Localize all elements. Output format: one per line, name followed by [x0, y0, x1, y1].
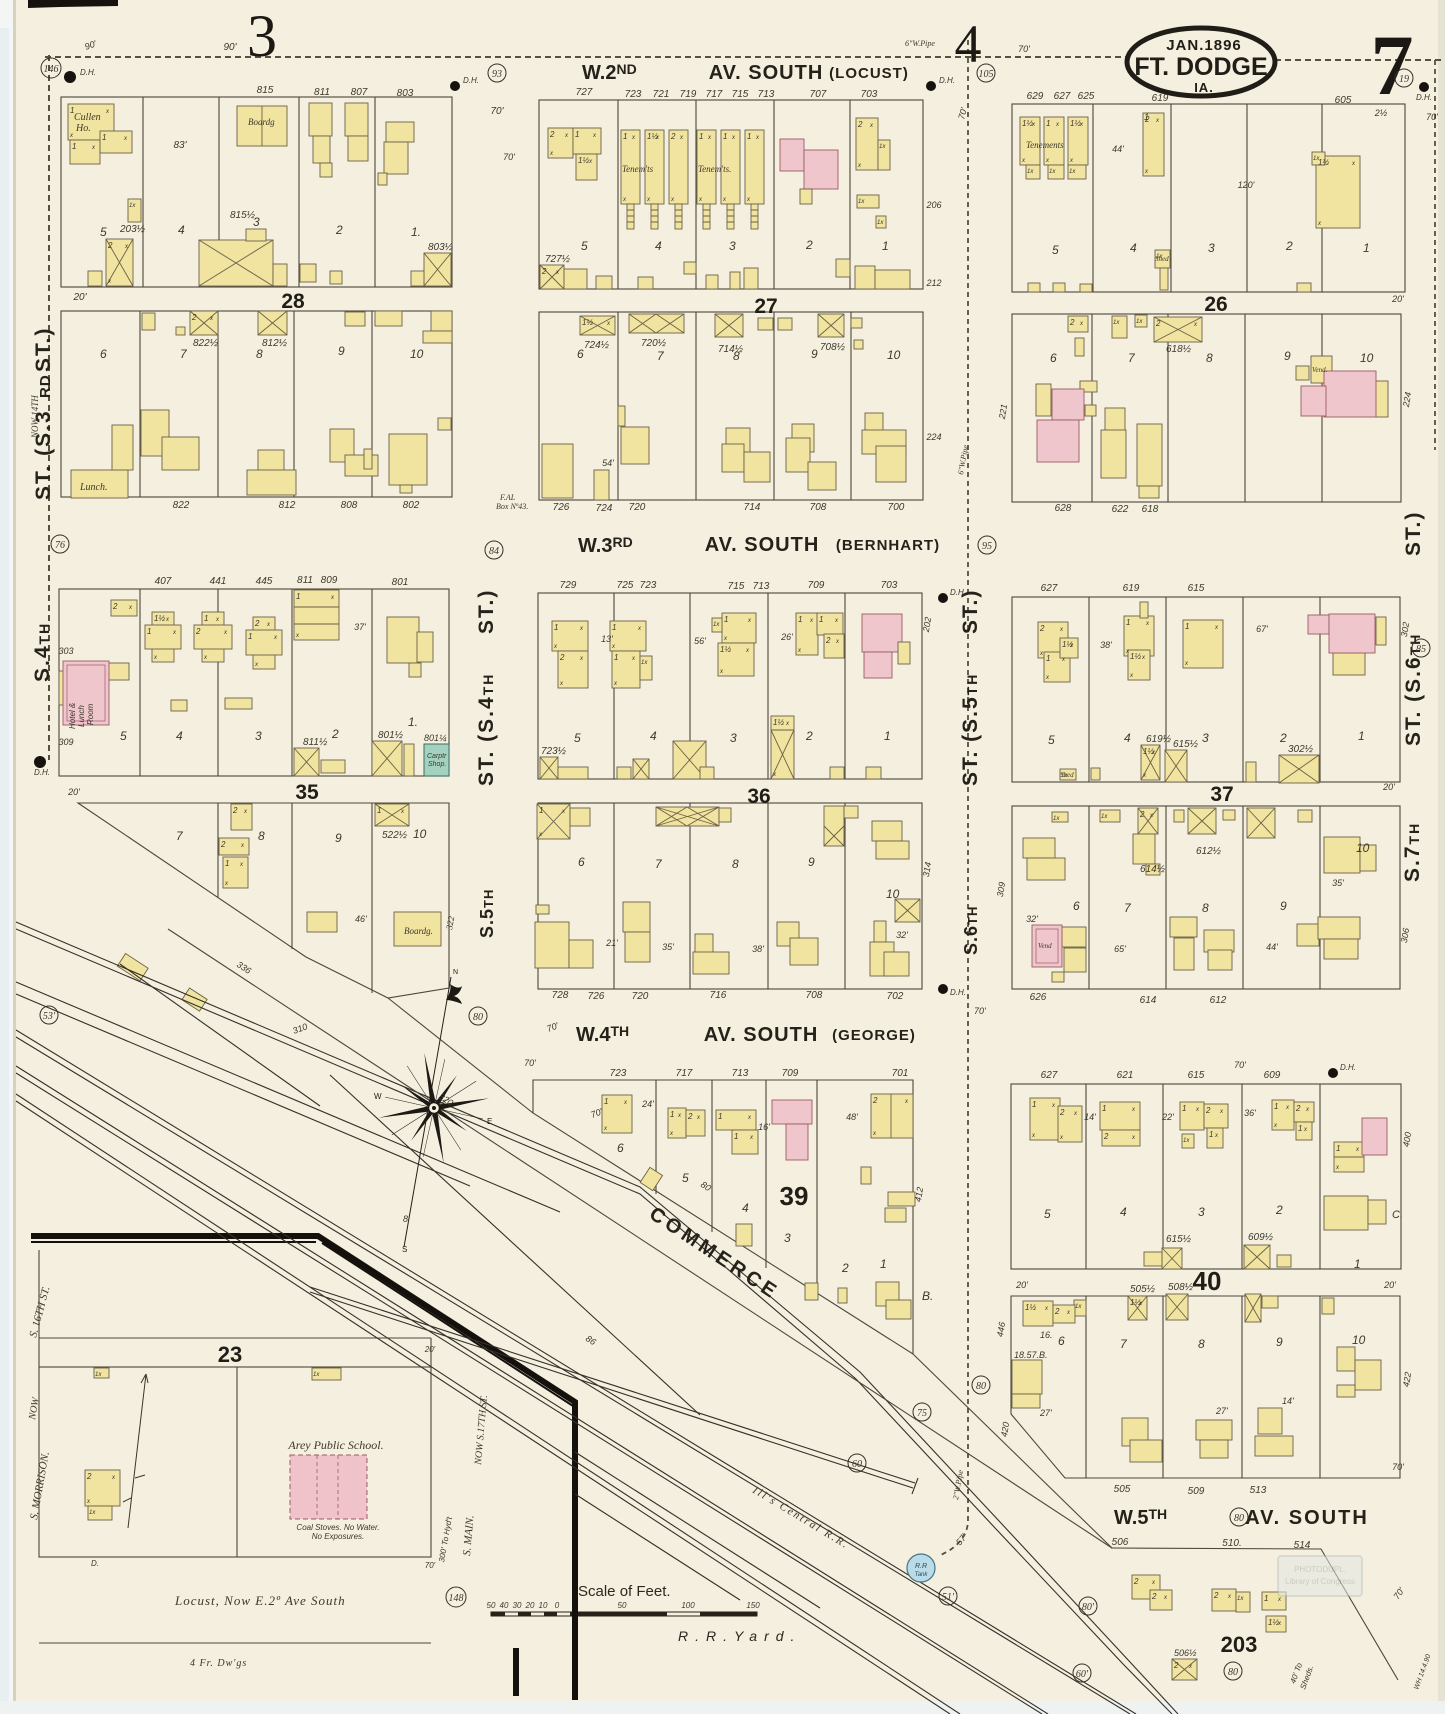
svg-text:2: 2 [1279, 731, 1287, 745]
svg-text:70': 70' [524, 1058, 536, 1068]
svg-text:2: 2 [670, 132, 676, 141]
svg-text:32': 32' [1026, 914, 1038, 924]
svg-text:3: 3 [730, 731, 737, 745]
svg-text:48': 48' [846, 1112, 858, 1122]
svg-text:1: 1 [225, 859, 229, 868]
svg-text:27': 27' [1039, 1408, 1052, 1418]
svg-text:44': 44' [1112, 144, 1124, 154]
svg-text:RD: RD [37, 374, 54, 398]
svg-text:39: 39 [780, 1181, 809, 1211]
svg-text:801: 801 [392, 577, 409, 588]
svg-text:2: 2 [1275, 1203, 1283, 1217]
svg-text:84: 84 [489, 546, 499, 557]
svg-text:10: 10 [410, 347, 424, 361]
svg-text:14': 14' [1084, 1112, 1096, 1122]
svg-text:622: 622 [1112, 504, 1129, 515]
svg-text:212: 212 [925, 278, 941, 288]
svg-text:76: 76 [55, 540, 65, 551]
svg-text:1: 1 [575, 130, 579, 139]
svg-text:FT. DODGE: FT. DODGE [1134, 53, 1267, 81]
svg-text:4: 4 [650, 729, 657, 743]
svg-text:729: 729 [560, 580, 577, 591]
svg-text:1x: 1x [1156, 254, 1163, 260]
svg-text:Vend.: Vend. [1312, 366, 1328, 374]
svg-text:26': 26' [780, 632, 793, 642]
svg-text:614: 614 [1140, 995, 1157, 1006]
svg-text:723: 723 [640, 580, 657, 591]
svg-text:2: 2 [1173, 1661, 1179, 1670]
svg-text:2: 2 [549, 130, 555, 139]
svg-text:65': 65' [1114, 944, 1126, 954]
svg-text:709: 709 [782, 1068, 799, 1079]
svg-text:105: 105 [979, 69, 994, 80]
svg-text:9: 9 [1280, 899, 1287, 913]
svg-text:629: 629 [1027, 91, 1044, 102]
svg-text:120': 120' [1238, 180, 1255, 190]
svg-text:N: N [453, 969, 458, 976]
svg-text:F.AL: F.AL [499, 493, 516, 502]
svg-text:714: 714 [744, 502, 761, 513]
svg-text:70': 70' [425, 1561, 436, 1570]
svg-text:8: 8 [732, 857, 739, 871]
svg-text:4: 4 [176, 729, 183, 743]
svg-text:4: 4 [955, 14, 982, 74]
svg-text:3: 3 [1202, 731, 1209, 745]
svg-text:716: 716 [710, 990, 727, 1001]
svg-text:1x: 1x [641, 660, 648, 666]
svg-text:1: 1 [1126, 618, 1130, 627]
svg-text:32': 32' [896, 930, 908, 940]
svg-text:612½: 612½ [1196, 846, 1222, 857]
svg-text:5: 5 [682, 1171, 689, 1185]
svg-text:1: 1 [1264, 1594, 1268, 1603]
svg-text:36': 36' [1244, 1108, 1256, 1118]
svg-text:80: 80 [473, 1012, 483, 1023]
svg-text:724½: 724½ [584, 340, 610, 351]
svg-text:1: 1 [734, 1132, 738, 1141]
svg-text:19: 19 [1399, 74, 1409, 85]
svg-text:707: 707 [810, 89, 827, 100]
svg-text:Ho.: Ho. [75, 123, 91, 134]
svg-text:38': 38' [1100, 640, 1112, 650]
svg-text:815: 815 [257, 85, 274, 96]
svg-text:619: 619 [1123, 583, 1140, 594]
svg-text:724: 724 [596, 503, 613, 514]
svg-text:80: 80 [1234, 1513, 1244, 1524]
svg-text:W: W [374, 1092, 382, 1101]
svg-text:2: 2 [107, 241, 113, 250]
svg-text:1: 1 [604, 1097, 608, 1106]
svg-text:50: 50 [618, 1601, 627, 1610]
svg-text:509: 509 [1188, 1486, 1205, 1497]
svg-text:1: 1 [72, 142, 76, 151]
svg-text:717: 717 [676, 1068, 693, 1079]
svg-text:1½: 1½ [1318, 158, 1329, 167]
svg-text:56': 56' [694, 636, 706, 646]
svg-text:4: 4 [742, 1201, 749, 1215]
svg-text:2: 2 [1133, 1577, 1139, 1586]
svg-text:1: 1 [102, 133, 106, 142]
svg-text:1½: 1½ [1130, 652, 1141, 661]
svg-text:309: 309 [58, 737, 73, 747]
svg-text:807: 807 [351, 87, 368, 98]
svg-text:802: 802 [403, 500, 420, 511]
svg-text:150: 150 [746, 1601, 760, 1610]
svg-text:2: 2 [1139, 810, 1145, 819]
svg-text:Tenem'ts: Tenem'ts [622, 164, 654, 174]
svg-text:Cullen: Cullen [74, 112, 101, 123]
svg-text:30: 30 [513, 1601, 522, 1610]
svg-text:1: 1 [884, 729, 891, 743]
svg-text:619: 619 [1152, 93, 1169, 104]
svg-text:522½: 522½ [382, 830, 408, 841]
svg-text:2: 2 [1213, 1591, 1219, 1600]
svg-text:85: 85 [1416, 644, 1426, 655]
svg-text:6: 6 [578, 855, 585, 869]
svg-text:2: 2 [254, 619, 260, 628]
svg-text:1: 1 [1185, 622, 1189, 631]
svg-text:2: 2 [112, 602, 118, 611]
svg-text:605: 605 [1335, 95, 1352, 106]
svg-text:Box Nº43.: Box Nº43. [496, 502, 528, 511]
svg-text:Lunch: Lunch [77, 705, 86, 727]
svg-text:715: 715 [728, 581, 745, 592]
svg-text:2: 2 [541, 267, 547, 276]
svg-text:D.H.: D.H. [34, 768, 50, 777]
svg-text:4: 4 [655, 239, 662, 253]
svg-text:808: 808 [341, 500, 358, 511]
svg-text:4 Fr. Dw'gs: 4 Fr. Dw'gs [190, 1658, 247, 1669]
svg-text:625: 625 [1078, 91, 1095, 102]
svg-text:303: 303 [58, 646, 73, 656]
svg-text:44': 44' [1266, 942, 1278, 952]
svg-text:1: 1 [614, 653, 618, 662]
svg-text:D.H.: D.H. [939, 76, 955, 85]
svg-text:1x: 1x [1075, 1304, 1082, 1310]
svg-text:809: 809 [321, 575, 338, 586]
svg-text:621: 621 [1117, 1070, 1134, 1081]
svg-text:713: 713 [758, 89, 775, 100]
svg-text:JAN.1896: JAN.1896 [1166, 37, 1242, 54]
svg-text:Boardg.: Boardg. [404, 926, 433, 936]
svg-text:626: 626 [1030, 992, 1047, 1003]
svg-text:3: 3 [784, 1231, 791, 1245]
svg-text:1x: 1x [879, 144, 886, 150]
svg-text:26: 26 [1204, 293, 1227, 316]
svg-text:37': 37' [354, 622, 366, 632]
svg-text:4: 4 [1124, 731, 1131, 745]
svg-text:9: 9 [811, 347, 818, 361]
svg-text:Scale of Feet.: Scale of Feet. [578, 1583, 671, 1600]
svg-text:1: 1 [1032, 1100, 1036, 1109]
svg-text:Shop.: Shop. [428, 761, 446, 768]
svg-text:8: 8 [256, 347, 263, 361]
svg-text:AV. SOUTH: AV. SOUTH [709, 62, 824, 84]
svg-text:50: 50 [487, 1601, 496, 1610]
svg-text:803½: 803½ [428, 242, 454, 253]
svg-text:713: 713 [753, 581, 770, 592]
svg-text:2: 2 [559, 653, 565, 662]
svg-text:721: 721 [653, 89, 670, 100]
svg-text:513: 513 [1250, 1485, 1267, 1496]
svg-text:9: 9 [1284, 349, 1291, 363]
svg-text:1½: 1½ [1025, 1303, 1036, 1312]
svg-text:23: 23 [218, 1342, 242, 1367]
svg-text:506½: 506½ [1174, 1648, 1197, 1658]
svg-text:505: 505 [1114, 1484, 1131, 1495]
svg-text:D.H.: D.H. [80, 68, 96, 77]
svg-text:1: 1 [718, 1112, 722, 1121]
svg-text:224: 224 [925, 432, 941, 442]
svg-text:Tenem'ts.: Tenem'ts. [698, 164, 731, 174]
svg-text:441: 441 [210, 576, 227, 587]
svg-text:Tank: Tank [915, 1572, 929, 1578]
svg-text:20': 20' [1015, 1280, 1028, 1290]
svg-text:5: 5 [1044, 1207, 1051, 1221]
svg-text:ST.): ST.) [475, 589, 498, 634]
svg-text:Lunch.: Lunch. [79, 482, 108, 493]
svg-text:407: 407 [155, 576, 172, 587]
svg-text:22': 22' [1161, 1112, 1174, 1122]
svg-text:70': 70' [974, 1006, 986, 1016]
svg-text:1: 1 [1046, 654, 1050, 663]
svg-text:1x: 1x [1101, 814, 1108, 820]
svg-text:1: 1 [882, 239, 889, 253]
svg-text:2: 2 [1059, 1108, 1065, 1117]
svg-text:1: 1 [248, 632, 252, 641]
svg-text:2: 2 [1155, 319, 1161, 328]
svg-text:2: 2 [872, 1096, 878, 1105]
svg-text:E: E [487, 1117, 492, 1126]
svg-text:16': 16' [758, 1122, 770, 1132]
svg-text:37: 37 [1210, 783, 1233, 806]
svg-text:1x: 1x [129, 203, 136, 209]
svg-text:1x: 1x [95, 1372, 102, 1378]
svg-text:24': 24' [641, 1099, 654, 1109]
svg-text:1: 1 [723, 132, 727, 141]
svg-text:95: 95 [982, 541, 992, 552]
svg-text:1½: 1½ [720, 645, 731, 654]
svg-text:2: 2 [220, 840, 226, 849]
svg-text:8: 8 [1202, 901, 1209, 915]
svg-text:727½: 727½ [545, 254, 571, 265]
svg-text:7: 7 [1371, 17, 1414, 113]
svg-text:54': 54' [602, 458, 614, 468]
svg-text:8: 8 [1198, 1337, 1205, 1351]
svg-text:3: 3 [255, 729, 262, 743]
svg-text:S: S [402, 1245, 407, 1254]
svg-text:16.: 16. [1040, 1330, 1053, 1340]
svg-text:2: 2 [825, 636, 831, 645]
svg-text:20': 20' [1391, 294, 1404, 304]
svg-text:2: 2 [1151, 1592, 1157, 1601]
svg-text:1x: 1x [713, 622, 720, 628]
svg-text:1x: 1x [1113, 320, 1120, 326]
svg-text:3: 3 [247, 3, 277, 69]
svg-text:D.H.: D.H. [950, 588, 966, 597]
svg-text:1x: 1x [1313, 156, 1320, 162]
svg-text:720: 720 [632, 991, 649, 1002]
svg-text:13': 13' [601, 634, 613, 644]
svg-text:2: 2 [331, 727, 339, 741]
svg-text:83': 83' [173, 140, 187, 151]
svg-text:726: 726 [588, 991, 605, 1002]
svg-text:2: 2 [1144, 115, 1150, 124]
svg-text:1.: 1. [408, 715, 418, 729]
svg-text:723: 723 [610, 1068, 627, 1079]
svg-text:2: 2 [687, 1112, 693, 1121]
svg-text:6: 6 [1058, 1334, 1065, 1348]
svg-text:2: 2 [1205, 1106, 1211, 1115]
svg-text:1x: 1x [1183, 1138, 1190, 1144]
svg-text:4: 4 [178, 223, 185, 237]
svg-text:14': 14' [1282, 1396, 1294, 1406]
svg-text:NOW 14TH: NOW 14TH [30, 395, 40, 439]
svg-text:Locust, Now E.2º Ave South: Locust, Now E.2º Ave South [174, 1593, 346, 1608]
svg-text:728: 728 [552, 990, 569, 1001]
svg-text:6: 6 [100, 347, 107, 361]
svg-text:1x: 1x [89, 1510, 96, 1516]
svg-text:2: 2 [1103, 1132, 1109, 1141]
svg-text:1x: 1x [1053, 816, 1060, 822]
svg-text:10: 10 [886, 887, 900, 901]
svg-text:811: 811 [297, 575, 313, 586]
svg-text:609½: 609½ [1248, 1232, 1274, 1243]
svg-text:35: 35 [295, 781, 319, 804]
svg-text:2: 2 [191, 313, 197, 322]
svg-text:10: 10 [413, 827, 427, 841]
svg-text:Hotel &: Hotel & [68, 703, 77, 729]
svg-text:203: 203 [1221, 1632, 1258, 1657]
svg-text:AV. SOUTH: AV. SOUTH [704, 1024, 819, 1046]
svg-text:D.H.: D.H. [1340, 1063, 1356, 1072]
svg-text:70': 70' [1018, 44, 1030, 54]
svg-text:AV. SOUTH: AV. SOUTH [1245, 1507, 1369, 1529]
svg-text:20': 20' [67, 787, 80, 797]
svg-text:1: 1 [699, 132, 703, 141]
svg-text:615: 615 [1188, 583, 1205, 594]
svg-text:Arey Public School.: Arey Public School. [287, 1438, 383, 1452]
svg-text:27': 27' [1215, 1406, 1228, 1416]
svg-text:70': 70' [1392, 1462, 1404, 1472]
svg-text:9: 9 [1276, 1335, 1283, 1349]
svg-text:811½: 811½ [303, 737, 328, 748]
svg-text:R.R: R.R [915, 1563, 927, 1570]
svg-text:1: 1 [880, 1257, 887, 1271]
svg-text:D.H.: D.H. [950, 988, 966, 997]
svg-text:2½: 2½ [1374, 108, 1388, 118]
svg-text:508½: 508½ [1168, 1282, 1194, 1293]
svg-text:2: 2 [335, 223, 343, 237]
svg-text:702: 702 [887, 991, 904, 1002]
svg-text:4: 4 [1120, 1205, 1127, 1219]
svg-text:No Exposures.: No Exposures. [312, 1532, 364, 1541]
svg-text:36: 36 [747, 785, 770, 808]
svg-text:302½: 302½ [1288, 744, 1314, 755]
svg-text:10: 10 [539, 1601, 548, 1610]
svg-text:203½: 203½ [119, 224, 146, 235]
svg-text:703: 703 [861, 89, 878, 100]
svg-text:2: 2 [1285, 239, 1293, 253]
svg-text:717: 717 [706, 89, 723, 100]
svg-text:1x: 1x [1237, 1596, 1244, 1602]
svg-text:822: 822 [173, 500, 190, 511]
svg-text:20': 20' [72, 292, 87, 303]
svg-text:615: 615 [1188, 1070, 1205, 1081]
svg-text:1x: 1x [1061, 773, 1068, 779]
svg-text:Boardg: Boardg [248, 117, 275, 127]
svg-text:35': 35' [1332, 878, 1344, 888]
svg-text:75: 75 [917, 1408, 927, 1419]
svg-text:1x: 1x [858, 199, 865, 205]
svg-text:18.57.B.: 18.57.B. [1014, 1350, 1048, 1360]
svg-text:67': 67' [1256, 624, 1268, 634]
svg-text:720½: 720½ [641, 338, 667, 349]
svg-text:9: 9 [338, 344, 345, 358]
svg-text:6: 6 [577, 347, 584, 361]
svg-text:1½: 1½ [773, 718, 784, 727]
svg-text:701: 701 [892, 1068, 909, 1079]
svg-text:815½: 815½ [230, 210, 256, 221]
svg-text:70': 70' [1234, 1060, 1246, 1070]
svg-text:619½: 619½ [1146, 734, 1172, 745]
svg-text:2: 2 [232, 806, 238, 815]
svg-text:2: 2 [195, 627, 201, 636]
svg-text:506: 506 [1112, 1537, 1129, 1548]
svg-text:Tenements: Tenements [1026, 140, 1064, 150]
svg-text:1x: 1x [1027, 169, 1034, 175]
svg-text:90': 90' [223, 42, 237, 53]
svg-text:1: 1 [377, 806, 381, 815]
svg-text:70': 70' [503, 152, 515, 162]
svg-text:2: 2 [805, 238, 813, 252]
svg-text:627: 627 [1041, 583, 1058, 594]
svg-text:80: 80 [976, 1381, 986, 1392]
svg-text:5: 5 [581, 239, 588, 253]
svg-text:727: 727 [576, 87, 593, 98]
svg-text:2: 2 [1054, 1307, 1060, 1316]
svg-text:1: 1 [1046, 119, 1050, 128]
svg-text:2: 2 [857, 120, 863, 129]
svg-text:709: 709 [808, 580, 825, 591]
svg-text:(GEORGE): (GEORGE) [832, 1027, 916, 1044]
svg-text:9: 9 [335, 831, 342, 845]
svg-text:1: 1 [1358, 729, 1365, 743]
svg-text:D.H.: D.H. [1416, 93, 1432, 102]
svg-text:801¼: 801¼ [424, 733, 447, 743]
svg-text:80': 80' [1082, 1602, 1095, 1613]
svg-text:D.: D. [91, 1559, 99, 1568]
svg-text:1x: 1x [1049, 169, 1056, 175]
svg-text:510.: 510. [1222, 1538, 1241, 1549]
svg-text:Vend: Vend [1038, 942, 1052, 950]
svg-text:720: 720 [629, 502, 646, 513]
svg-text:40: 40 [500, 1601, 509, 1610]
svg-text:445: 445 [256, 576, 273, 587]
svg-text:1: 1 [623, 132, 627, 141]
svg-text:1: 1 [1274, 1102, 1278, 1111]
svg-text:70': 70' [490, 106, 504, 117]
svg-text:714½: 714½ [718, 344, 744, 355]
svg-text:5: 5 [120, 729, 127, 743]
svg-text:618½: 618½ [1166, 344, 1192, 355]
svg-text:100: 100 [681, 1601, 695, 1610]
svg-text:5: 5 [1048, 733, 1055, 747]
svg-text:1: 1 [612, 623, 616, 632]
svg-text:803: 803 [397, 88, 414, 99]
svg-text:618: 618 [1142, 504, 1159, 515]
svg-text:703: 703 [881, 580, 898, 591]
